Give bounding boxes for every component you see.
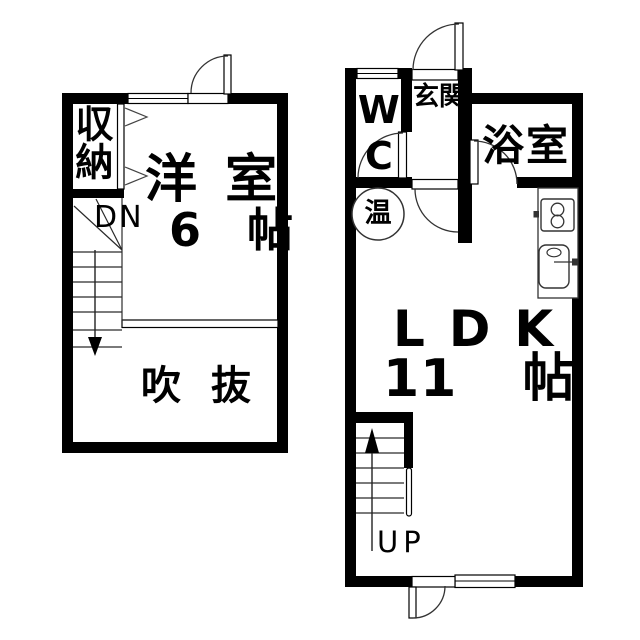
- threshold-hall-ldk: [412, 180, 458, 190]
- folding-door-chevron-icon: [125, 167, 147, 185]
- kitchen-counter: [534, 188, 579, 298]
- up-arrow-icon: [365, 428, 379, 453]
- door-arc-entrance: [413, 24, 459, 70]
- door-leaf-1f-bottom: [409, 587, 416, 618]
- entrance-label: 玄関: [413, 84, 465, 111]
- stairs-1f: [356, 438, 404, 513]
- door-arc-hall-ldk: [415, 189, 458, 232]
- closet-door-chevrons: [125, 108, 147, 185]
- door-leaf-bath: [470, 140, 478, 184]
- stairs-down-label: DN: [94, 202, 144, 234]
- wall-2f-bottom: [62, 442, 288, 453]
- wall-1f-left: [345, 68, 356, 587]
- wall-stairs-right: [404, 412, 413, 468]
- wall-bath-top: [458, 93, 583, 104]
- wall-1f-bottom-left: [345, 576, 412, 587]
- western-room-label: 洋 室: [145, 153, 282, 208]
- threshold-1f-bottom-door: [412, 577, 455, 588]
- wall-2f-right: [277, 93, 288, 453]
- wall-closet-bottom: [62, 189, 124, 198]
- western-room-size-label: 6 帖: [169, 206, 308, 254]
- threshold-entrance: [412, 70, 458, 81]
- water-heater-label: 温: [352, 200, 404, 228]
- wall-1f-bottom-right: [515, 576, 583, 587]
- wall-wc-divider: [401, 68, 412, 132]
- ldk-size-label: 11 帖: [383, 352, 575, 407]
- wc-label: WC: [358, 88, 398, 180]
- folding-door-chevron-icon: [125, 108, 147, 126]
- bath-label: 浴室: [482, 124, 570, 168]
- door-arc-2f-top: [191, 56, 228, 93]
- closet-sliding-door: [118, 104, 125, 189]
- door-leaf-entrance: [455, 23, 463, 70]
- ldk-label: LDK: [393, 303, 577, 356]
- door-leaf-2f-top: [224, 55, 231, 94]
- threshold-2f-door: [188, 94, 228, 104]
- floor-plan-canvas: 収納 DN 洋 室 6 帖 吹 抜 WC 玄関 浴室 温 LDK 11 帖 UP: [0, 0, 640, 640]
- void-label: 吹 抜: [141, 365, 259, 407]
- closet-label: 収納: [70, 104, 110, 180]
- door-arc-1f-bottom: [413, 586, 445, 618]
- stairs-up-label: UP: [377, 527, 426, 557]
- stair-handrail: [407, 468, 412, 516]
- down-arrow: [88, 250, 102, 356]
- wall-stairs-top: [345, 412, 413, 423]
- void-railing: [122, 320, 278, 328]
